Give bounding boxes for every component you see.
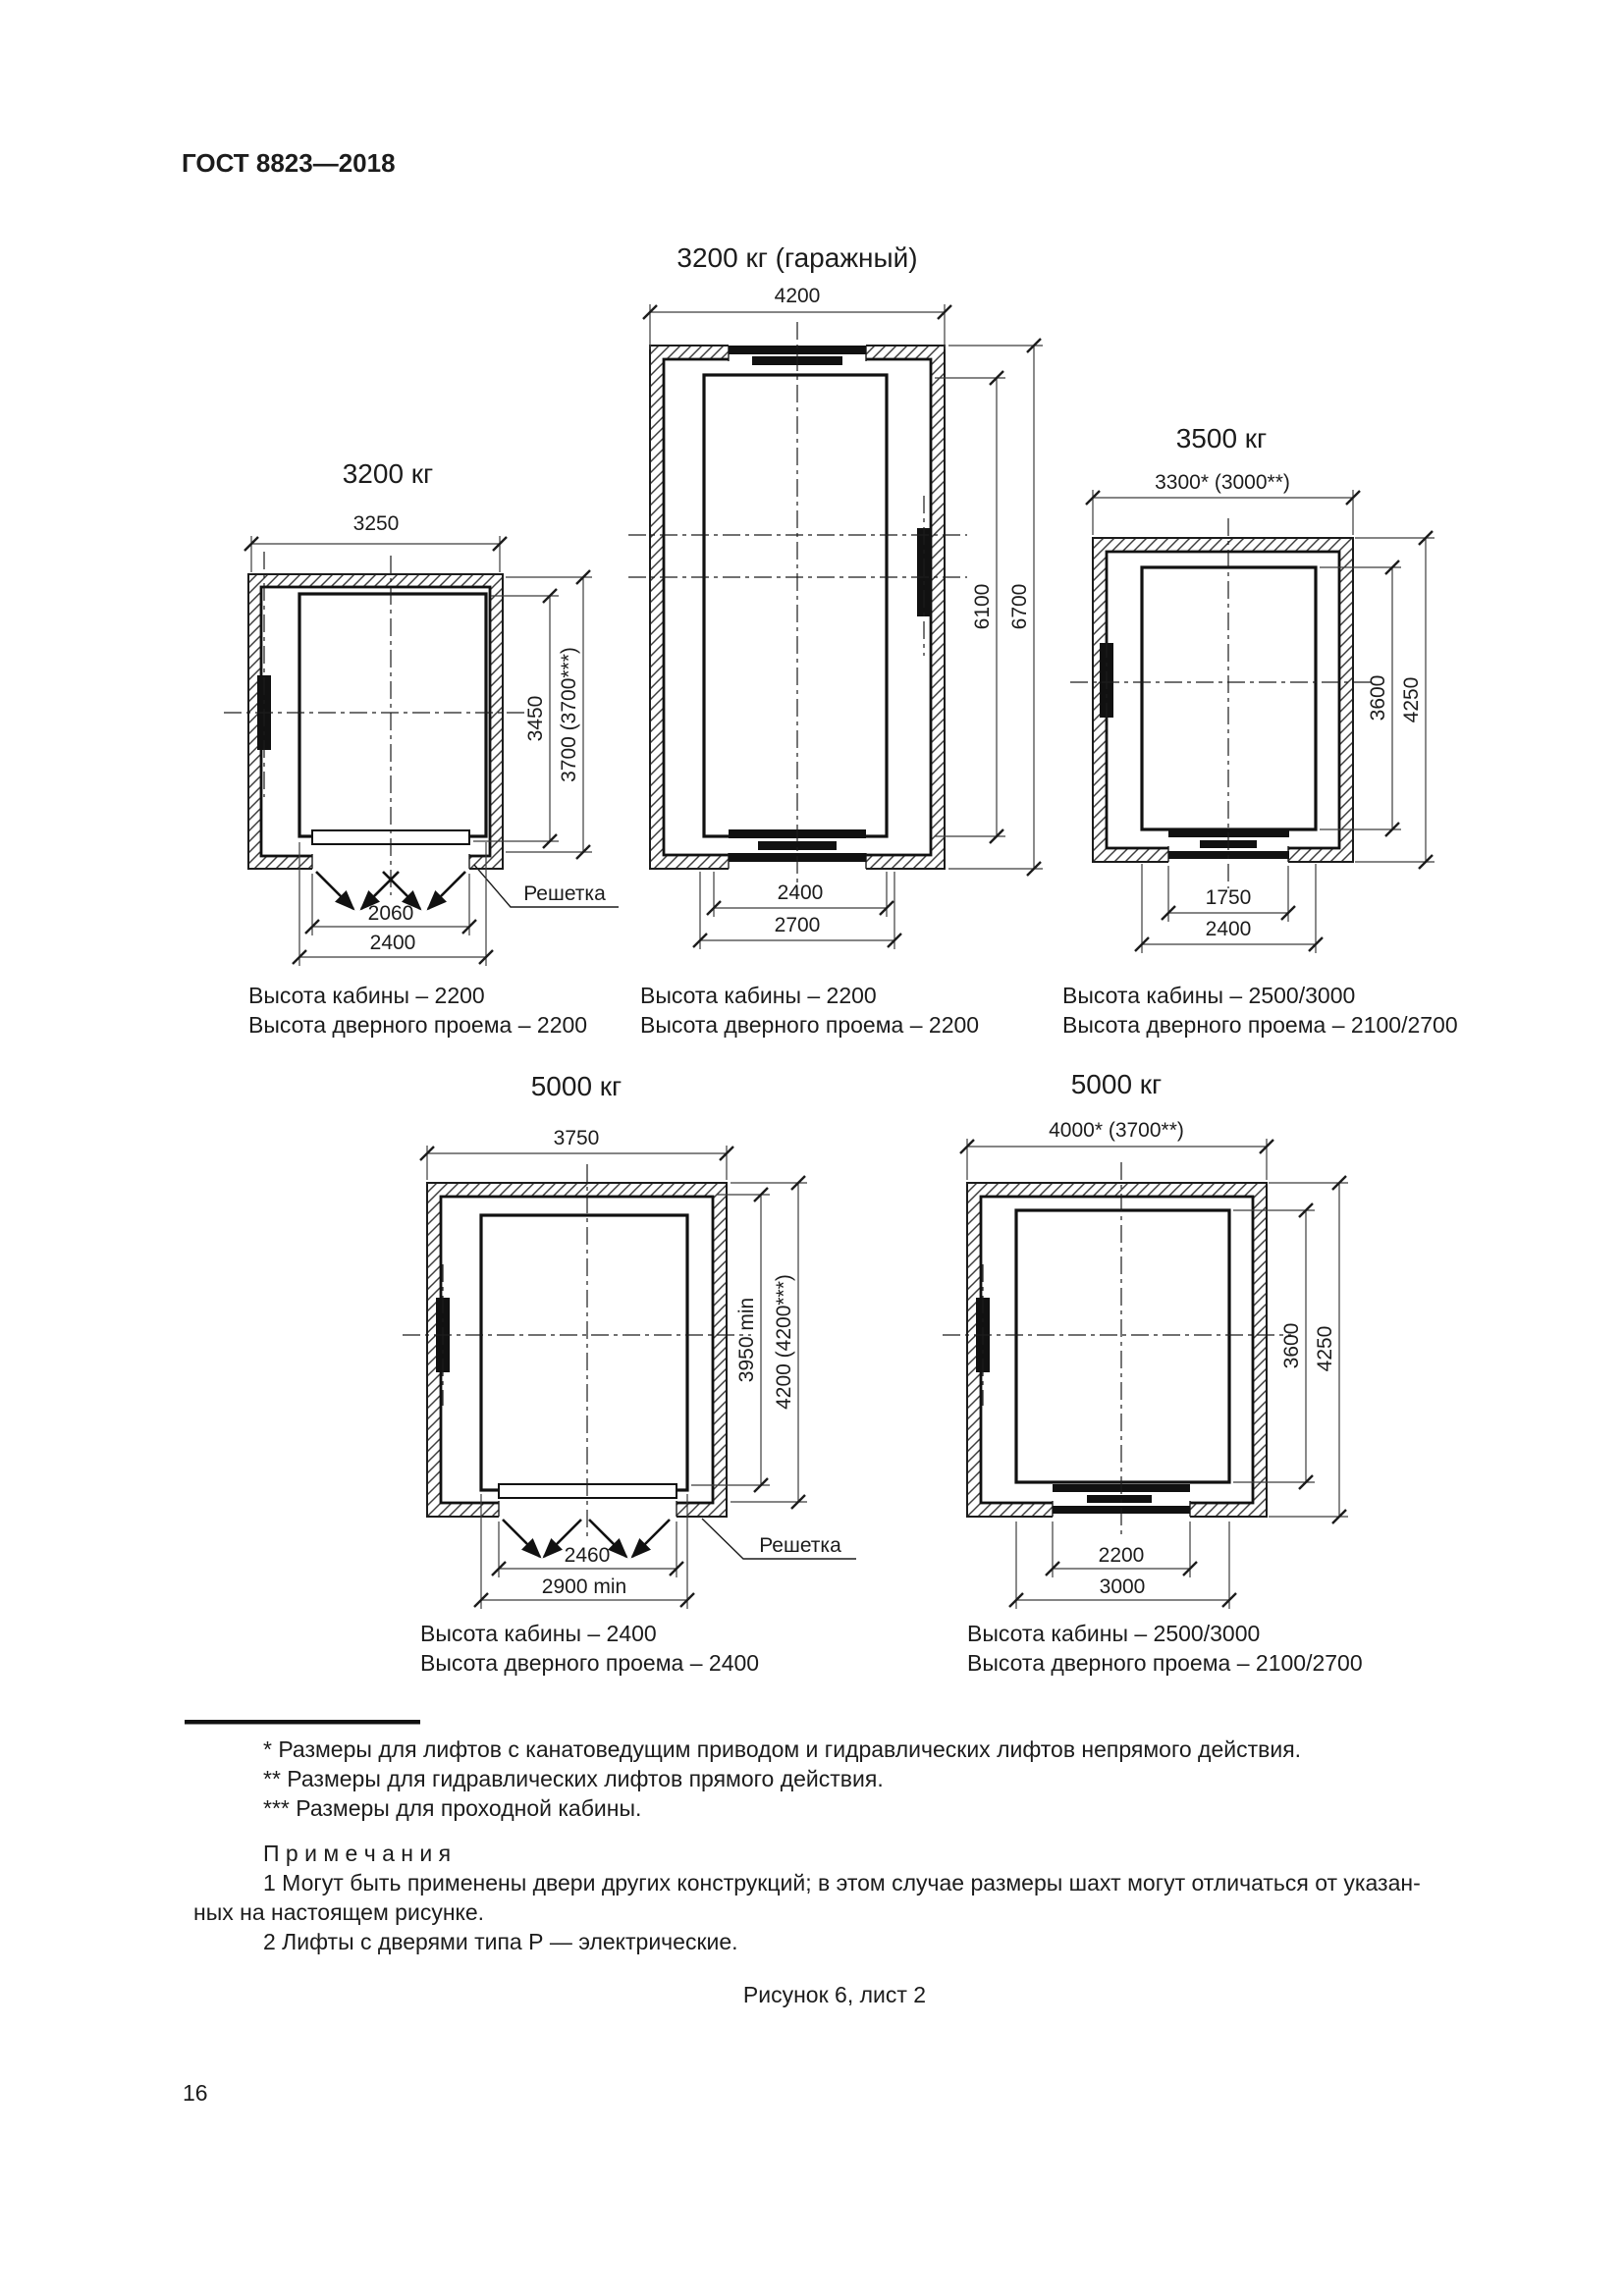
- caption-cabin-height: Высота кабины – 2500/3000: [967, 1621, 1260, 1646]
- dim-label-height-outer: 4250: [1400, 677, 1423, 723]
- cabin-outline: [299, 594, 486, 836]
- caption-door-height: Высота дверного проема – 2100/2700: [1062, 1012, 1458, 1038]
- dim-label-height-outer: 6700: [1008, 584, 1031, 630]
- dim-label-height-outer: 4200 (4200***): [773, 1274, 795, 1410]
- shaft-walls: [1093, 538, 1353, 863]
- shaft-walls: [248, 574, 503, 871]
- caption-door-height: Высота дверного проема – 2200: [640, 1012, 979, 1038]
- dim-label-bottom-outer: 2400: [370, 932, 416, 954]
- diagram-bottomright-5000: 5000 кг 4000* (3700**) 3600 4250 2200 30…: [943, 1069, 1363, 1676]
- caption-cabin-height: Высота кабины – 2400: [420, 1621, 657, 1646]
- caption-door-height: Высота дверного проема – 2400: [420, 1650, 759, 1676]
- dim-label-height-outer: 3700 (3700***): [558, 647, 580, 782]
- caption-cabin-height: Высота кабины – 2500/3000: [1062, 983, 1355, 1008]
- caption-cabin-height: Высота кабины – 2200: [640, 983, 877, 1008]
- dim-label-bottom-inner: 2200: [1099, 1544, 1145, 1567]
- figure-caption: Рисунок 6, лист 2: [743, 1982, 926, 2007]
- diagram-title: 3500 кг: [1176, 423, 1268, 454]
- caption-door-height: Высота дверного проема – 2100/2700: [967, 1650, 1363, 1676]
- dim-label-bottom-inner: 2460: [565, 1544, 611, 1567]
- dim-label-height-inner: 3950 min: [735, 1298, 758, 1382]
- dim-label-bottom-outer: 2400: [1206, 918, 1252, 940]
- dim-label-bottom-inner: 2400: [778, 881, 824, 904]
- grille-callout: Решетка: [474, 865, 619, 907]
- dim-label-height-inner: 6100: [971, 584, 994, 630]
- dim-label-height-inner: 3450: [524, 696, 547, 742]
- diagram-title: 3200 кг (гаражный): [677, 242, 917, 273]
- shaft-walls: [967, 1183, 1267, 1519]
- grille-label: Решетка: [759, 1534, 841, 1557]
- document-page: ГОСТ 8823—2018: [0, 0, 1624, 2296]
- diagram-left-3200: Решетка 3200 кг 3250 3450 3700 (3700***)…: [224, 458, 619, 1038]
- dim-label-width: 3750: [554, 1127, 600, 1149]
- dim-label-bottom-inner: 1750: [1206, 886, 1252, 909]
- grille-callout: Решетка: [702, 1519, 856, 1559]
- footnote-2: ** Размеры для гидравлических лифтов пря…: [263, 1766, 884, 1791]
- dim-label-bottom-outer: 2700: [775, 914, 821, 936]
- note-1-line-2: ных на настоящем рисунке.: [193, 1899, 484, 1925]
- footnote-3: *** Размеры для проходной кабины.: [263, 1795, 641, 1821]
- diagram-garage-3200: 3200 кг (гаражный) 4200 6100 6700 2400 2…: [628, 242, 1043, 1038]
- diagram-title: 5000 кг: [531, 1071, 623, 1101]
- centerlines: [403, 1164, 751, 1537]
- notes-heading: П р и м е ч а н и я: [263, 1841, 451, 1866]
- notes-block: П р и м е ч а н и я 1 Могут быть примене…: [193, 1841, 1421, 1954]
- diagram-title: 3200 кг: [343, 458, 434, 489]
- dim-label-width: 3300* (3000**): [1155, 471, 1290, 494]
- diagram-right-3500: 3500 кг 3300* (3000**) 3600 4250 1750 24…: [1062, 423, 1458, 1038]
- caption-door-height: Высота дверного проема – 2200: [248, 1012, 587, 1038]
- cabin-outline: [1016, 1210, 1229, 1482]
- caption-cabin-height: Высота кабины – 2200: [248, 983, 485, 1008]
- diagram-title: 5000 кг: [1071, 1069, 1163, 1099]
- dim-label-width: 3250: [353, 512, 400, 535]
- footnotes-block: * Размеры для лифтов с канатоведущим при…: [185, 1720, 1301, 1821]
- document-header: ГОСТ 8823—2018: [182, 148, 396, 178]
- technical-drawing: ГОСТ 8823—2018: [0, 0, 1624, 2296]
- diagram-bottomleft-5000: Решетка 5000 кг 3750 3950 min 4200 (4200…: [403, 1071, 856, 1676]
- cabin-outline: [704, 375, 887, 836]
- shaft-walls: [427, 1183, 727, 1519]
- footnote-1: * Размеры для лифтов с канатоведущим при…: [263, 1736, 1301, 1762]
- grille-label: Решетка: [523, 882, 606, 905]
- cabin-outline: [481, 1215, 687, 1490]
- dim-label-width: 4200: [775, 285, 821, 307]
- page-number: 16: [183, 2080, 208, 2106]
- dim-label-height-outer: 4250: [1314, 1326, 1336, 1372]
- note-2: 2 Лифты с дверями типа Р — электрические…: [263, 1929, 738, 1954]
- dim-label-bottom-outer: 3000: [1100, 1575, 1146, 1598]
- footnote-rule: [185, 1720, 420, 1725]
- dim-label-height-inner: 3600: [1367, 675, 1389, 721]
- dim-label-bottom-outer: 2900 min: [542, 1575, 626, 1598]
- dim-label-width: 4000* (3700**): [1049, 1119, 1184, 1142]
- note-1-line-1: 1 Могут быть применены двери других конс…: [263, 1870, 1421, 1896]
- dim-label-bottom-inner: 2060: [368, 902, 414, 925]
- centerlines: [628, 322, 967, 895]
- dim-label-height-inner: 3600: [1280, 1323, 1303, 1369]
